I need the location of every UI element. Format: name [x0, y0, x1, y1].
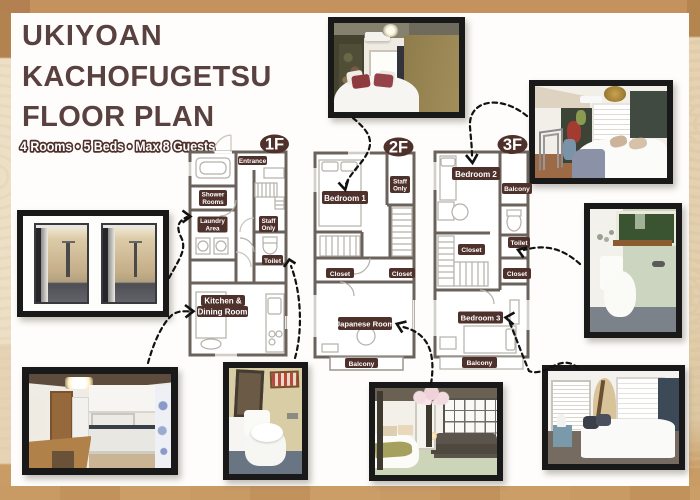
svg-text:Only: Only — [393, 186, 407, 193]
svg-text:Balcony: Balcony — [504, 186, 530, 193]
svg-text:Japanese Room: Japanese Room — [336, 320, 394, 329]
svg-text:Closet: Closet — [461, 247, 482, 254]
svg-text:Balcony: Balcony — [349, 361, 375, 368]
svg-text:Entrance: Entrance — [239, 158, 267, 165]
svg-text:Staff: Staff — [262, 218, 277, 225]
svg-text:Laundry: Laundry — [200, 218, 225, 225]
svg-text:4 Rooms • 5 Beds • Max 8 Guest: 4 Rooms • 5 Beds • Max 8 Guests — [20, 138, 215, 154]
svg-text:Closet: Closet — [330, 271, 351, 278]
svg-text:Rooms: Rooms — [202, 199, 224, 206]
svg-text:Bedroom 2: Bedroom 2 — [455, 170, 497, 179]
svg-text:Closet: Closet — [392, 271, 413, 278]
svg-text:Shower: Shower — [202, 192, 225, 199]
svg-text:Bedroom 1: Bedroom 1 — [324, 194, 366, 203]
svg-text:Dining Room: Dining Room — [198, 308, 248, 317]
svg-text:Closet: Closet — [507, 271, 528, 278]
svg-text:Area: Area — [205, 225, 219, 232]
svg-text:3F: 3F — [503, 136, 522, 154]
svg-text:Toilet: Toilet — [510, 240, 528, 247]
svg-text:1F: 1F — [265, 135, 284, 153]
svg-text:Only: Only — [262, 225, 276, 232]
svg-text:Kitchen &: Kitchen & — [204, 297, 242, 306]
svg-text:2F: 2F — [389, 138, 408, 156]
svg-text:Bedroom 3: Bedroom 3 — [461, 314, 501, 323]
svg-text:Balcony: Balcony — [467, 360, 493, 367]
svg-text:Toilet: Toilet — [264, 258, 282, 265]
svg-text:Staff: Staff — [393, 178, 408, 185]
